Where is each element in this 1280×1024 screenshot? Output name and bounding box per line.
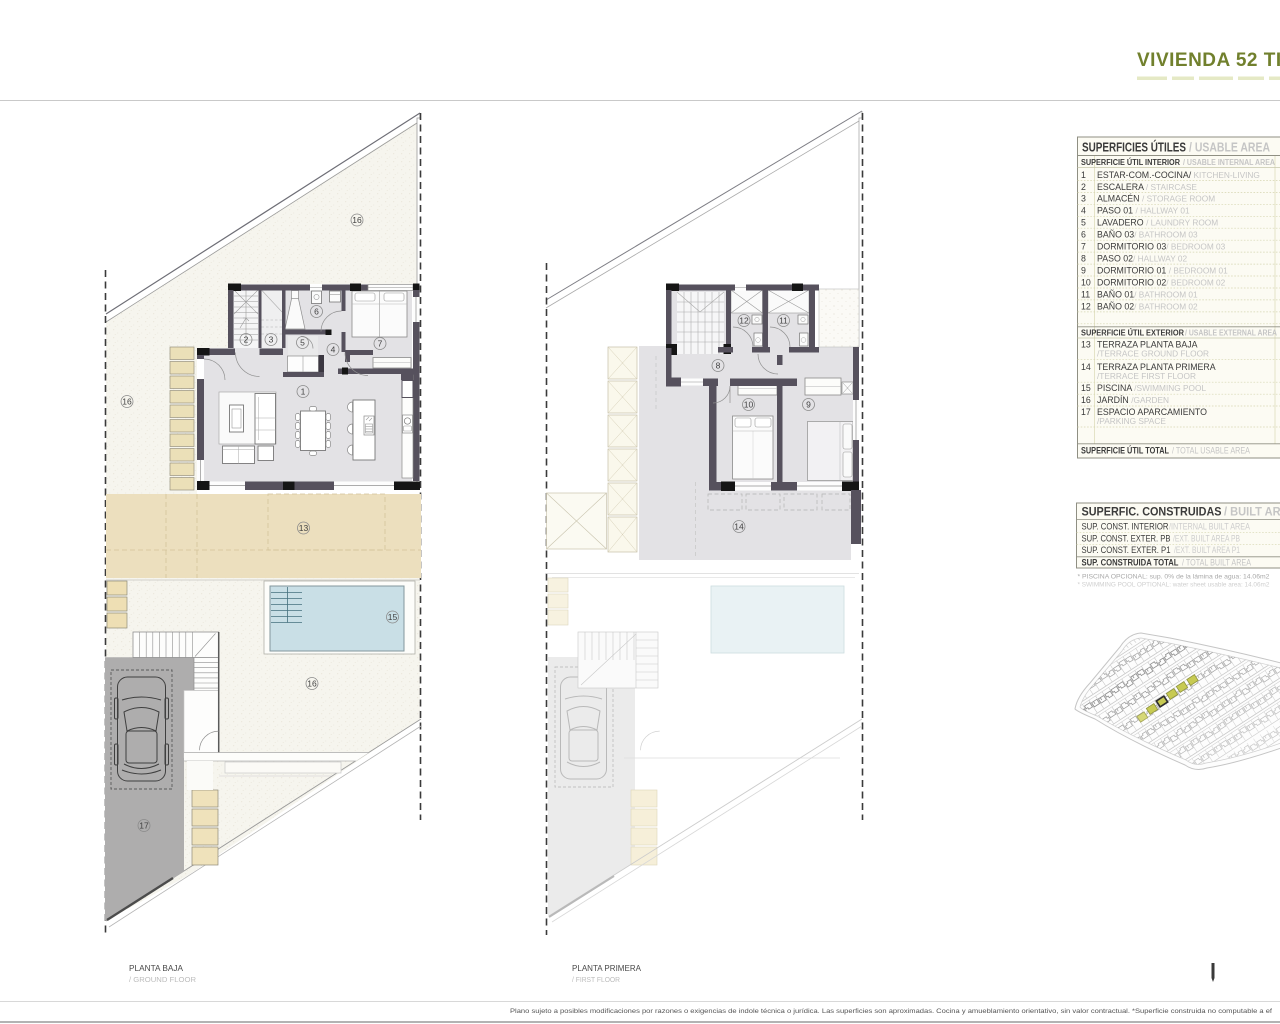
svg-text:4: 4	[1081, 206, 1086, 216]
svg-text:/ FIRST FLOOR: / FIRST FLOOR	[572, 975, 621, 984]
svg-text:17: 17	[1081, 407, 1091, 417]
svg-text:/ GROUND FLOOR: / GROUND FLOOR	[129, 975, 197, 984]
svg-text:7: 7	[378, 339, 383, 349]
svg-text:PLANTA PRIMERA: PLANTA PRIMERA	[572, 963, 641, 973]
svg-text:/ USABLE EXTERNAL AREA: / USABLE EXTERNAL AREA	[1185, 328, 1277, 337]
svg-text:SUPERFICIE ÚTIL INTERIOR: SUPERFICIE ÚTIL INTERIOR	[1081, 158, 1180, 167]
svg-text:SUP. CONST. EXTER. PB: SUP. CONST. EXTER. PB	[1082, 533, 1171, 543]
svg-text:17: 17	[139, 821, 149, 831]
svg-text:11: 11	[779, 316, 788, 326]
svg-text:PISCINA /SWIMMING POOL: PISCINA /SWIMMING POOL	[1097, 383, 1206, 393]
svg-text:5: 5	[1081, 218, 1086, 228]
svg-text:LAVADERO / LAUNDRY ROOM: LAVADERO / LAUNDRY ROOM	[1097, 218, 1218, 228]
svg-text:10: 10	[1081, 277, 1091, 287]
svg-text:Plano sujeto a posibles modifi: Plano sujeto a posibles modificaciones p…	[510, 1008, 1272, 1015]
svg-text:SUP. CONST. EXTER. P1: SUP. CONST. EXTER. P1	[1082, 545, 1171, 555]
svg-text:16: 16	[307, 679, 317, 689]
svg-text:PLANTA BAJA: PLANTA BAJA	[129, 963, 183, 973]
svg-text:2: 2	[1081, 182, 1086, 192]
svg-text:VIVIENDA 52 TI: VIVIENDA 52 TI	[1137, 50, 1280, 71]
svg-text:/INTERNAL BUILT AREA: /INTERNAL BUILT AREA	[1169, 521, 1251, 531]
svg-text:* PISCINA OPCIONAL: sup. 0% de: * PISCINA OPCIONAL: sup. 0% de la lámina…	[1078, 574, 1270, 581]
svg-text:BAÑO 01/ BATHROOM 01: BAÑO 01/ BATHROOM 01	[1097, 289, 1198, 299]
svg-text:/TERRACE GROUND FLOOR: /TERRACE GROUND FLOOR	[1097, 348, 1209, 358]
svg-text:/PARKING SPACE: /PARKING SPACE	[1097, 416, 1166, 426]
svg-text:16: 16	[122, 397, 132, 407]
svg-text:SUPERFICIES ÚTILES: SUPERFICIES ÚTILES	[1082, 140, 1186, 155]
svg-text:SUPERFICIE ÚTIL TOTAL: SUPERFICIE ÚTIL TOTAL	[1081, 444, 1170, 455]
svg-text:14: 14	[734, 522, 744, 532]
svg-text:/ TOTAL USABLE AREA: / TOTAL USABLE AREA	[1172, 445, 1250, 455]
svg-text:9: 9	[806, 400, 811, 410]
svg-text:1: 1	[301, 387, 306, 397]
svg-text:ESTAR-COM.-COCINA/ KITCHEN-LIV: ESTAR-COM.-COCINA/ KITCHEN-LIVING	[1097, 170, 1260, 180]
svg-text:/ USABLE INTERNAL AREA: / USABLE INTERNAL AREA	[1183, 158, 1275, 167]
svg-text:DORMITORIO 02/ BEDROOM 02: DORMITORIO 02/ BEDROOM 02	[1097, 277, 1226, 287]
svg-text:4: 4	[331, 345, 336, 355]
svg-text:12: 12	[739, 316, 749, 326]
svg-text:PASO 01 / HALLWAY 01: PASO 01 / HALLWAY 01	[1097, 206, 1190, 216]
svg-text:6: 6	[1081, 230, 1086, 240]
svg-text:13: 13	[299, 523, 309, 533]
svg-text:/EXT. BUILT AREA P1: /EXT. BUILT AREA P1	[1174, 545, 1240, 555]
svg-text:SUP. CONST. INTERIOR: SUP. CONST. INTERIOR	[1082, 521, 1169, 531]
svg-text:/TERRACE FIRST FLOOR: /TERRACE FIRST FLOOR	[1097, 371, 1196, 381]
svg-text:8: 8	[716, 361, 721, 371]
svg-text:/ USABLE AREA: / USABLE AREA	[1189, 141, 1270, 155]
svg-text:13: 13	[1081, 339, 1091, 349]
svg-text:3: 3	[269, 335, 274, 345]
svg-text:10: 10	[744, 400, 754, 410]
svg-text:15: 15	[388, 612, 398, 622]
svg-text:BAÑO 02/ BATHROOM 02: BAÑO 02/ BATHROOM 02	[1097, 301, 1198, 311]
svg-text:16: 16	[1081, 395, 1091, 405]
svg-text:2: 2	[244, 335, 249, 345]
svg-text:11: 11	[1081, 289, 1090, 299]
svg-text:6: 6	[314, 307, 319, 317]
svg-text:8: 8	[1081, 254, 1086, 264]
svg-text:PASO 02/ HALLWAY 02: PASO 02/ HALLWAY 02	[1097, 254, 1188, 264]
svg-text:12: 12	[1081, 301, 1091, 311]
svg-text:DORMITORIO 01 / BEDROOM 01: DORMITORIO 01 / BEDROOM 01	[1097, 265, 1228, 275]
svg-text:SUPERFICIE ÚTIL EXTERIOR: SUPERFICIE ÚTIL EXTERIOR	[1081, 328, 1184, 337]
svg-text:SUPERFIC. CONSTRUIDAS: SUPERFIC. CONSTRUIDAS	[1082, 504, 1222, 518]
svg-text:ESCALERA / STAIRCASE: ESCALERA / STAIRCASE	[1097, 182, 1197, 192]
svg-text:ALMACÉN / STORAGE ROOM: ALMACÉN / STORAGE ROOM	[1097, 194, 1215, 204]
svg-text:JARDÍN /GARDEN: JARDÍN /GARDEN	[1097, 395, 1169, 405]
svg-text:3: 3	[1081, 194, 1086, 204]
svg-text:SUP. CONSTRUIDA TOTAL: SUP. CONSTRUIDA TOTAL	[1082, 557, 1179, 567]
svg-text:/ BUILT AREA: / BUILT AREA	[1224, 504, 1280, 518]
svg-text:7: 7	[1081, 242, 1086, 252]
svg-text:/ TOTAL BUILT AREA: / TOTAL BUILT AREA	[1182, 557, 1252, 567]
svg-text:/EXT. BUILT AREA PB: /EXT. BUILT AREA PB	[1173, 533, 1240, 543]
svg-text:* SWIMMING POOL OPTIONAL: wate: * SWIMMING POOL OPTIONAL: water sheet us…	[1078, 582, 1270, 589]
svg-text:5: 5	[300, 338, 305, 348]
svg-text:16: 16	[352, 215, 362, 225]
svg-text:14: 14	[1081, 362, 1091, 372]
svg-text:15: 15	[1081, 383, 1091, 393]
svg-text:DORMITORIO 03/ BEDROOM 03: DORMITORIO 03/ BEDROOM 03	[1097, 242, 1226, 252]
svg-text:1: 1	[1081, 170, 1086, 180]
svg-text:9: 9	[1081, 265, 1086, 275]
svg-text:BAÑO 03/ BATHROOM 03: BAÑO 03/ BATHROOM 03	[1097, 230, 1198, 240]
